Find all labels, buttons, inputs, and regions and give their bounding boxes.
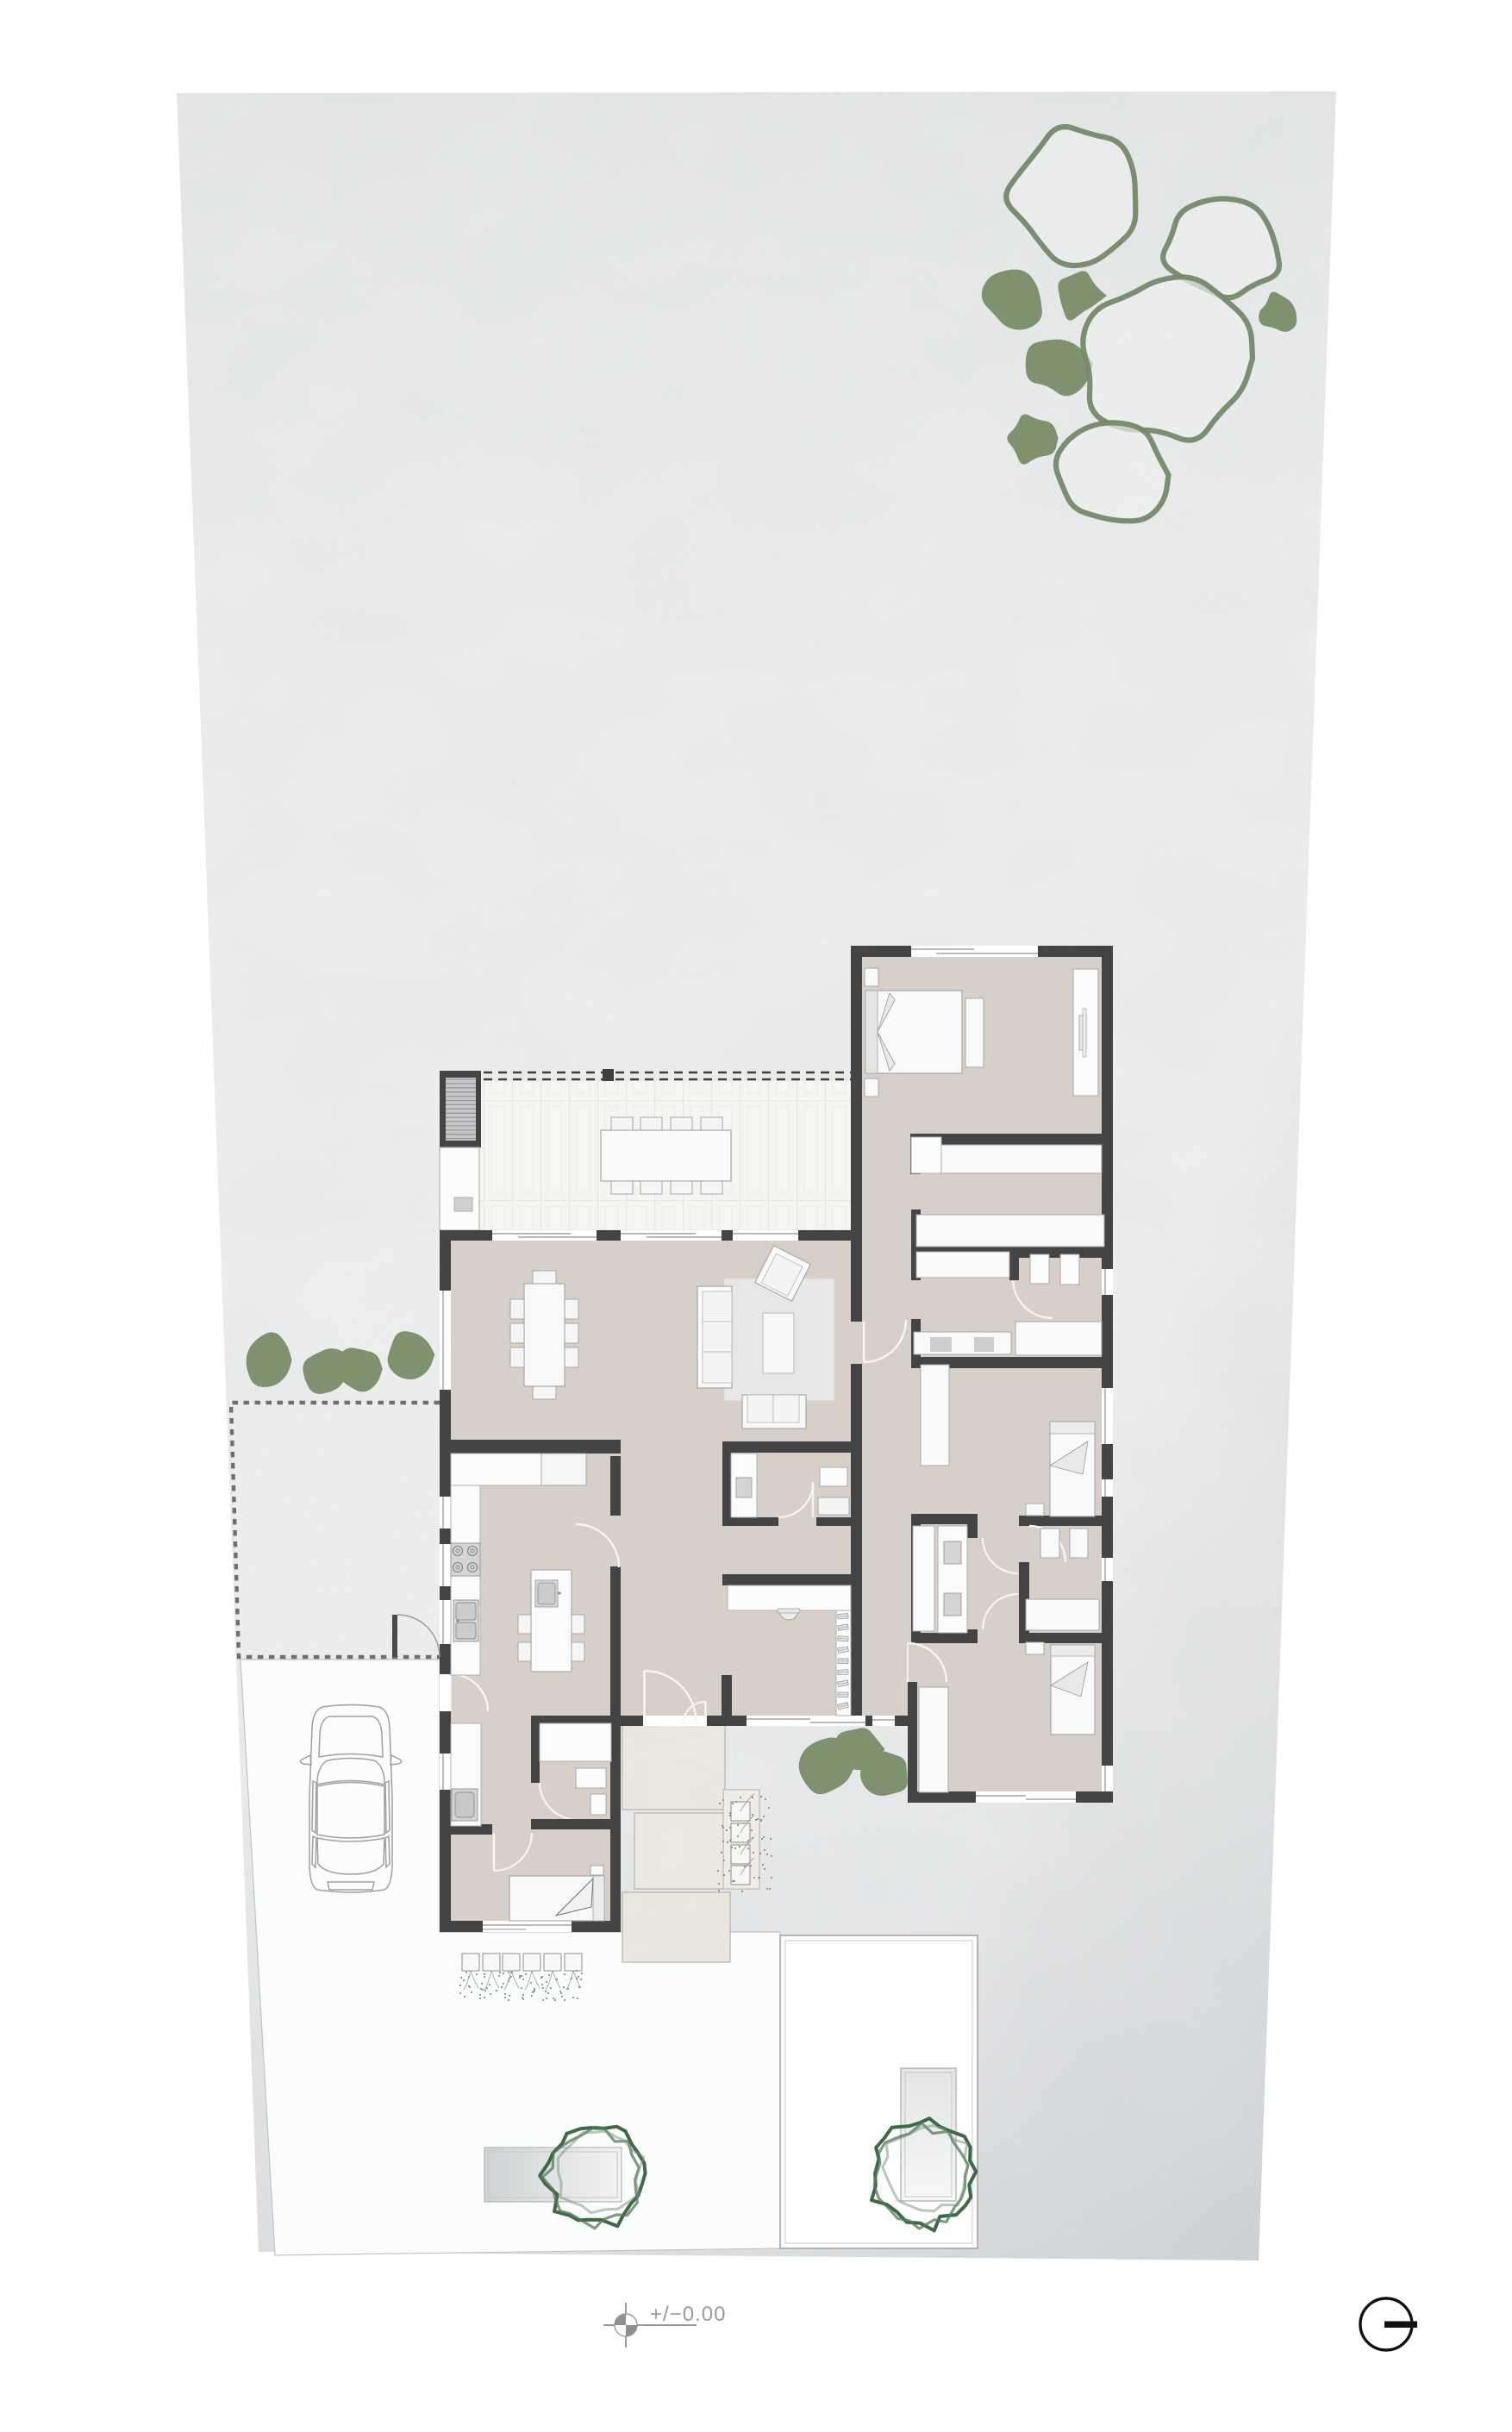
svg-text:+/−0.00: +/−0.00 — [650, 2303, 726, 2326]
